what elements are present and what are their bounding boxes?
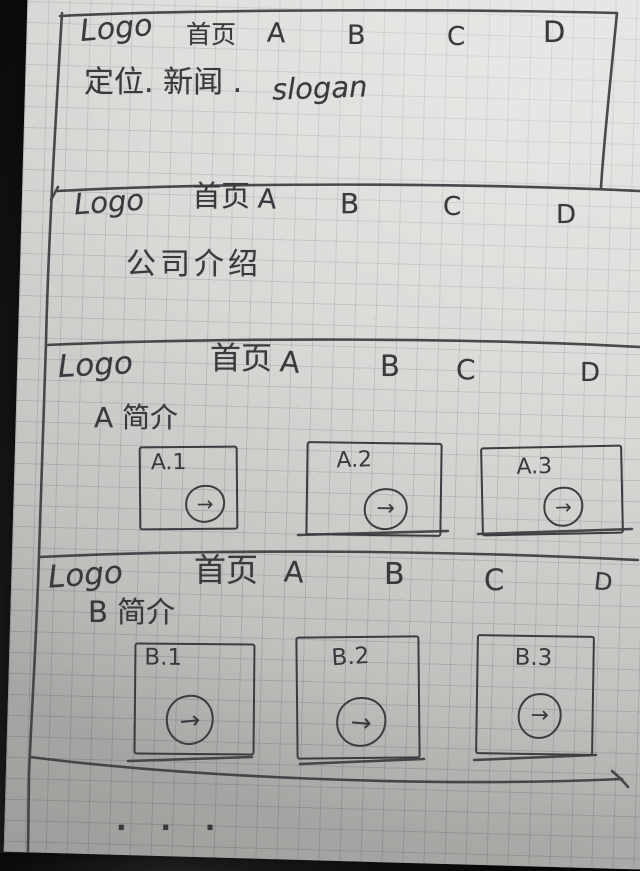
divider-line-3 bbox=[39, 552, 638, 560]
logo-text: Logo bbox=[57, 348, 133, 383]
right-arrow-icon: → bbox=[376, 498, 395, 520]
company-intro-text: 公司介绍 bbox=[126, 250, 262, 280]
divider-line-2 bbox=[46, 340, 640, 347]
nav-item-c: C bbox=[484, 566, 504, 595]
nav-item-home: 首页 bbox=[210, 344, 272, 375]
bottom-border-tick bbox=[612, 771, 628, 787]
nav-item-d: D bbox=[580, 360, 600, 386]
arrow-circle-icon: → bbox=[185, 485, 225, 523]
arrow-circle-icon: → bbox=[363, 488, 408, 531]
nav-item-home: 首页 bbox=[194, 554, 258, 586]
section-heading: A 简介 bbox=[94, 404, 178, 432]
nav-item-d: D bbox=[543, 18, 565, 47]
nav-item-b: B bbox=[347, 22, 366, 49]
card-b1-underline bbox=[128, 757, 252, 761]
nav-item-c: C bbox=[456, 356, 476, 384]
tagline-cn: 定位. 新闻 . bbox=[84, 68, 242, 98]
card-label: A.3 bbox=[516, 454, 552, 480]
nav-item-b: B bbox=[340, 190, 359, 218]
logo-text: Logo bbox=[47, 557, 124, 593]
card-a1: A.1 → bbox=[139, 446, 239, 531]
left-border-line bbox=[28, 13, 62, 852]
nav-item-b: B bbox=[380, 352, 400, 381]
nav-item-c: C bbox=[443, 194, 461, 220]
nav-item-a: A bbox=[279, 347, 301, 378]
card-label: B.1 bbox=[144, 645, 182, 671]
right-arrow-icon: → bbox=[530, 705, 549, 727]
arrow-circle-icon: → bbox=[517, 693, 562, 740]
nav-item-d: D bbox=[593, 569, 614, 595]
section1-right-border-line bbox=[601, 13, 617, 188]
card-a3: A.3 → bbox=[480, 445, 624, 537]
nav-item-a: A bbox=[257, 185, 277, 213]
photo-of-sketch: Logo 首页 A B C D 定位. 新闻 . slogan Logo 首页 … bbox=[0, 0, 640, 853]
section-heading: B 简介 bbox=[88, 598, 175, 627]
card-b3: B.3 → bbox=[475, 634, 595, 756]
right-arrow-icon: → bbox=[197, 494, 214, 514]
nav-item-a: A bbox=[266, 20, 286, 48]
nav-item-d: D bbox=[556, 202, 576, 228]
nav-item-a: A bbox=[283, 557, 305, 587]
bottom-border-line bbox=[30, 757, 622, 782]
arrow-circle-icon: → bbox=[164, 693, 217, 747]
nav-item-c: C bbox=[447, 24, 465, 50]
card-label: A.2 bbox=[336, 447, 373, 473]
nav-item-home: 首页 bbox=[186, 22, 236, 47]
card-label: B.3 bbox=[514, 645, 552, 672]
right-arrow-icon: → bbox=[350, 709, 373, 736]
nav-item-b: B bbox=[384, 560, 405, 590]
logo-text: Logo bbox=[73, 186, 145, 220]
card-label: B.2 bbox=[331, 643, 370, 671]
card-b1: B.1 → bbox=[134, 642, 256, 755]
more-sections-ellipsis: · · · bbox=[116, 814, 227, 842]
card-b3-underline bbox=[474, 755, 596, 760]
nav-item-home: 首页 bbox=[192, 182, 250, 211]
right-arrow-icon: → bbox=[178, 707, 201, 734]
right-arrow-icon: → bbox=[555, 497, 572, 517]
wireframe-sketch-layer: Logo 首页 A B C D 定位. 新闻 . slogan Logo 首页 … bbox=[0, 0, 640, 853]
arrow-circle-icon: → bbox=[334, 695, 388, 749]
arrow-circle-icon: → bbox=[543, 486, 584, 527]
tagline-slogan: slogan bbox=[272, 72, 368, 104]
card-a2: A.2 → bbox=[305, 441, 442, 537]
card-b2-underline bbox=[300, 759, 424, 764]
logo-text: Logo bbox=[79, 11, 154, 47]
divider-tick bbox=[51, 187, 58, 200]
card-label: A.1 bbox=[151, 450, 187, 475]
card-b2: B.2 → bbox=[295, 635, 420, 759]
